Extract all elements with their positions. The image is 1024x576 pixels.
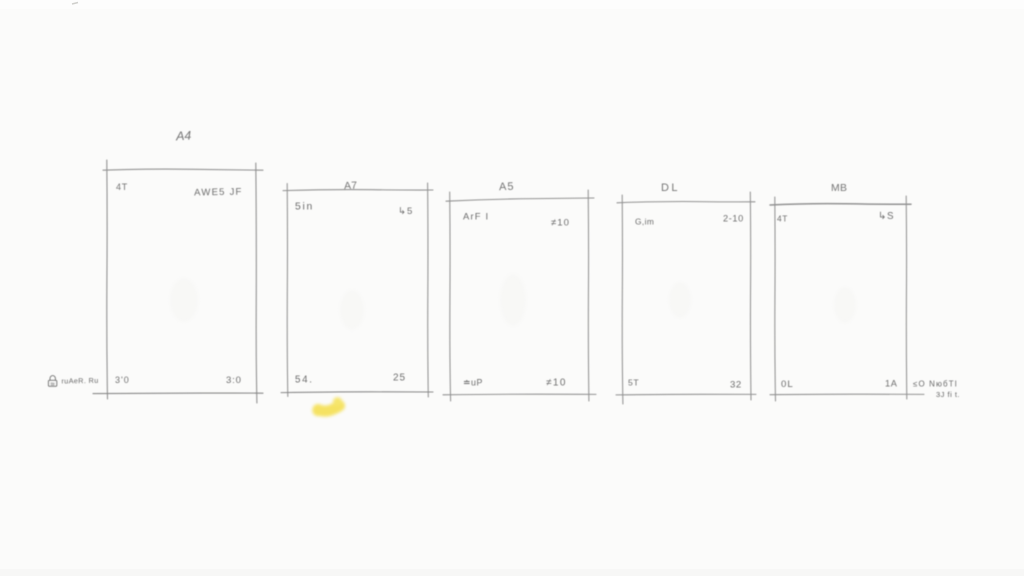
- svg-text:32: 32: [730, 380, 742, 391]
- svg-text:5T: 5T: [628, 378, 639, 388]
- svg-text:≐uP: ≐uP: [463, 378, 483, 388]
- svg-text:3:0: 3:0: [226, 375, 242, 386]
- svg-text:MB: MB: [831, 183, 847, 194]
- svg-text:AWE5 JF: AWE5 JF: [194, 187, 243, 199]
- svg-text:4T: 4T: [777, 214, 788, 224]
- svg-text:25: 25: [393, 373, 406, 384]
- svg-text:A4: A4: [175, 129, 192, 144]
- svg-text:3'0: 3'0: [115, 375, 130, 385]
- svg-text:↳S: ↳S: [878, 211, 894, 222]
- svg-text:4T: 4T: [116, 182, 128, 192]
- svg-text:↳5: ↳5: [398, 206, 413, 217]
- svg-text:A5: A5: [499, 181, 515, 194]
- svg-text:0L: 0L: [781, 379, 794, 390]
- svg-text:A7: A7: [344, 180, 357, 192]
- svg-text:1A: 1A: [885, 379, 898, 389]
- svg-text:≠10: ≠10: [551, 218, 570, 229]
- svg-text:ruAeR. Ru: ruAeR. Ru: [61, 376, 98, 386]
- svg-text:DL: DL: [661, 182, 680, 194]
- svg-text:54.: 54.: [295, 375, 314, 386]
- svg-text:≤O NюбTI: ≤O NюбTI: [913, 380, 958, 389]
- svg-text:G,im: G,im: [635, 217, 654, 227]
- svg-text:3J fi t.: 3J fi t.: [936, 390, 960, 399]
- svg-text:5in: 5in: [295, 202, 314, 213]
- svg-text:≠10: ≠10: [546, 378, 567, 389]
- svg-text:2-10: 2-10: [723, 214, 744, 224]
- svg-text:ArF I: ArF I: [463, 211, 489, 222]
